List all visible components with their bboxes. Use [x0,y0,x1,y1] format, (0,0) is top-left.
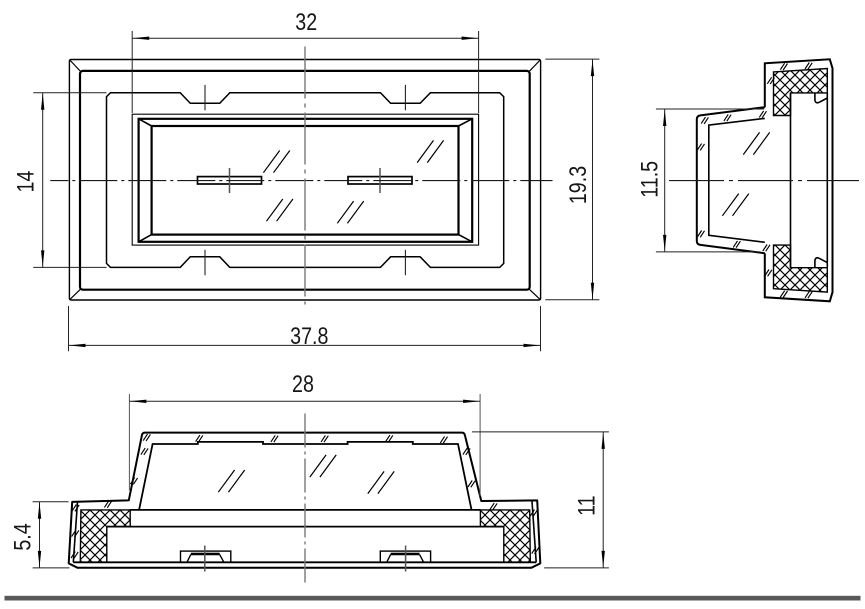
svg-text:19.3: 19.3 [564,166,591,204]
svg-text:28: 28 [292,370,314,397]
svg-text:32: 32 [295,8,317,35]
svg-text:11: 11 [573,495,600,515]
svg-text:14: 14 [12,171,39,193]
svg-text:11.5: 11.5 [636,161,663,198]
svg-text:5.4: 5.4 [9,523,36,550]
svg-text:37.8: 37.8 [290,322,328,349]
